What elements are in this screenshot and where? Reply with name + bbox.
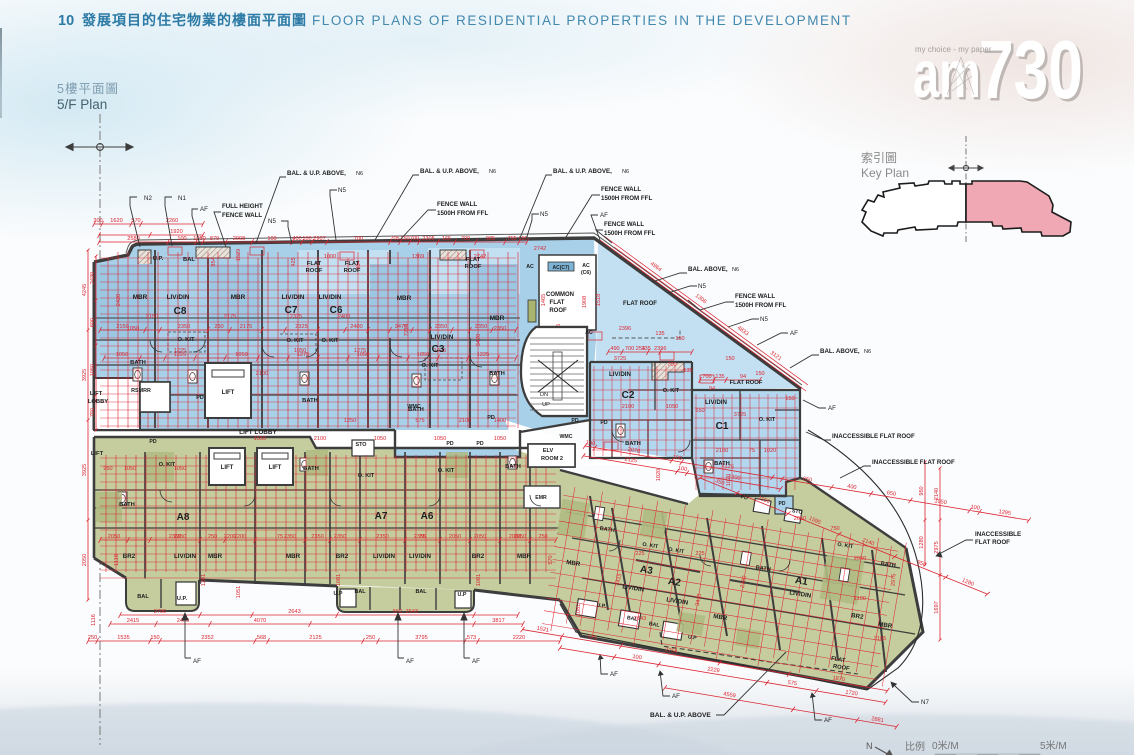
svg-text:N1: N1 (178, 195, 186, 202)
svg-text:MBR: MBR (286, 553, 301, 560)
svg-text:PD: PD (149, 439, 156, 445)
svg-text:FLOOR PLANS OF RESIDENTIAL PRO: FLOOR PLANS OF RESIDENTIAL PROPERTIES IN… (312, 13, 852, 28)
svg-text:1100: 1100 (854, 596, 866, 602)
svg-text:AF: AF (610, 671, 618, 678)
svg-text:MBR: MBR (231, 294, 246, 301)
svg-text:2420: 2420 (116, 294, 122, 306)
svg-text:FULL HEIGHT: FULL HEIGHT (222, 203, 263, 210)
svg-text:LIV/DIN: LIV/DIN (319, 294, 342, 301)
svg-text:BAL. & U.P. ABOVE,: BAL. & U.P. ABOVE, (420, 168, 479, 175)
svg-text:N: N (866, 741, 873, 751)
svg-text:1535: 1535 (117, 635, 129, 641)
svg-text:LIV/DIN: LIV/DIN (431, 334, 454, 341)
svg-text:2050: 2050 (108, 534, 120, 540)
svg-text:LIFT: LIFT (90, 391, 103, 397)
svg-text:BAL: BAL (415, 589, 427, 595)
svg-text:AF: AF (406, 658, 414, 665)
svg-text:575: 575 (415, 418, 424, 424)
svg-text:300: 300 (93, 218, 102, 224)
svg-text:135: 135 (655, 331, 664, 337)
svg-text:FLAT: FLAT (307, 261, 322, 267)
svg-text:LIFT: LIFT (91, 451, 104, 457)
svg-text:2907: 2907 (313, 236, 325, 242)
svg-text:400: 400 (292, 236, 301, 242)
svg-text:MBR: MBR (517, 553, 532, 560)
svg-text:PD: PD (196, 395, 204, 401)
svg-text:75: 75 (749, 448, 755, 454)
svg-text:2100: 2100 (459, 418, 471, 424)
svg-text:BATH: BATH (130, 360, 146, 366)
svg-text:1500H FROM FFL: 1500H FROM FFL (604, 230, 655, 237)
svg-text:750: 750 (90, 408, 96, 417)
svg-text:150: 150 (785, 396, 794, 402)
svg-text:AF: AF (672, 693, 680, 700)
svg-text:my choice - my paper: my choice - my paper (915, 45, 992, 54)
svg-text:1518: 1518 (596, 294, 602, 306)
svg-text:LIV/DIN: LIV/DIN (373, 553, 396, 560)
svg-text:150: 150 (675, 336, 684, 342)
svg-text:568: 568 (257, 635, 266, 641)
svg-text:EMR: EMR (535, 495, 547, 501)
svg-text:2975: 2975 (890, 573, 897, 586)
svg-text:A2: A2 (667, 576, 682, 589)
svg-text:1369: 1369 (412, 254, 424, 260)
svg-text:2350: 2350 (311, 534, 323, 540)
svg-text:FLAT ROOF: FLAT ROOF (975, 539, 1010, 546)
svg-text:1920: 1920 (170, 229, 182, 235)
svg-text:BAL. ABOVE,: BAL. ABOVE, (688, 266, 728, 273)
svg-text:LIFT: LIFT (269, 465, 282, 471)
svg-text:A8: A8 (177, 512, 190, 523)
svg-text:1050: 1050 (127, 326, 139, 332)
svg-text:700: 700 (354, 236, 363, 242)
svg-text:2396: 2396 (619, 326, 631, 332)
svg-text:225: 225 (635, 551, 644, 557)
svg-text:MBR: MBR (133, 294, 148, 301)
svg-text:DN: DN (540, 392, 548, 398)
svg-text:2050: 2050 (794, 516, 806, 522)
svg-text:N7: N7 (921, 699, 929, 706)
svg-text:573: 573 (467, 635, 476, 641)
svg-text:C8: C8 (174, 306, 187, 317)
svg-text:1050: 1050 (666, 404, 678, 410)
svg-text:250: 250 (214, 324, 223, 330)
svg-text:STO: STO (356, 442, 367, 448)
svg-text:1050: 1050 (294, 348, 306, 354)
svg-text:3725: 3725 (734, 412, 746, 418)
svg-text:3795: 3795 (415, 635, 427, 641)
svg-text:2050: 2050 (82, 554, 88, 566)
svg-text:950: 950 (103, 466, 112, 472)
svg-text:2350: 2350 (475, 324, 487, 330)
svg-text:BAL. & U.P. ABOVE: BAL. & U.P. ABOVE (650, 712, 711, 719)
svg-text:LIV/DIN: LIV/DIN (174, 553, 197, 560)
svg-text:FENCE WALL: FENCE WALL (222, 212, 262, 219)
svg-text:BATH: BATH (302, 398, 318, 404)
svg-text:LIFT: LIFT (221, 465, 234, 471)
svg-text:N5: N5 (540, 211, 548, 218)
svg-text:O. KIT: O. KIT (177, 337, 195, 343)
svg-text:2352: 2352 (201, 635, 213, 641)
svg-text:BATH: BATH (714, 461, 730, 467)
svg-text:INACCESSIBLE FLAT ROOF: INACCESSIBLE FLAT ROOF (832, 433, 915, 440)
svg-text:FLAT ROOF: FLAT ROOF (730, 380, 763, 386)
svg-text:BR2: BR2 (123, 553, 136, 560)
svg-text:LOBBY: LOBBY (88, 399, 108, 405)
svg-text:ROOF: ROOF (465, 264, 482, 270)
svg-text:2050: 2050 (854, 556, 866, 562)
svg-text:5米/M: 5米/M (1040, 739, 1067, 752)
svg-text:3725: 3725 (614, 356, 626, 362)
svg-text:750: 750 (830, 526, 839, 532)
svg-text:879: 879 (210, 236, 219, 242)
svg-text:1050: 1050 (193, 236, 205, 242)
svg-text:100: 100 (302, 236, 311, 242)
svg-text:3185: 3185 (874, 636, 886, 642)
svg-text:MBR: MBR (397, 295, 412, 302)
svg-text:1118: 1118 (114, 554, 120, 566)
svg-text:A7: A7 (375, 511, 388, 522)
svg-text:BATH: BATH (303, 466, 319, 472)
svg-text:3925: 3925 (82, 464, 88, 476)
svg-text:2350: 2350 (494, 326, 506, 332)
svg-text:2350: 2350 (414, 534, 426, 540)
svg-text:1081: 1081 (336, 574, 342, 586)
svg-text:150: 150 (400, 236, 409, 242)
svg-text:BR2: BR2 (336, 553, 349, 560)
svg-text:2150: 2150 (146, 314, 158, 320)
svg-text:AF: AF (200, 206, 208, 213)
svg-text:索引圖: 索引圖 (861, 151, 897, 165)
svg-text:1225: 1225 (174, 348, 186, 354)
svg-text:AF: AF (790, 330, 798, 337)
svg-text:LIV/DIN: LIV/DIN (167, 294, 190, 301)
svg-text:135: 135 (715, 374, 724, 380)
svg-text:1500H FROM FFL: 1500H FROM FFL (437, 210, 488, 217)
svg-text:BATH: BATH (119, 502, 135, 508)
svg-text:O. KIT: O. KIT (358, 473, 375, 479)
svg-text:1050: 1050 (174, 466, 186, 472)
svg-text:1051: 1051 (236, 586, 242, 598)
svg-text:2975: 2975 (934, 541, 940, 553)
svg-text:N6: N6 (489, 169, 496, 175)
svg-text:1275: 1275 (354, 348, 366, 354)
svg-text:ROOF: ROOF (306, 268, 323, 274)
svg-text:2790: 2790 (154, 609, 166, 615)
svg-text:ROOF: ROOF (344, 268, 361, 274)
svg-text:A3: A3 (639, 564, 654, 577)
svg-text:AC: AC (526, 264, 534, 270)
svg-text:5樓平面圖: 5樓平面圖 (57, 81, 119, 96)
svg-text:1020: 1020 (764, 448, 776, 454)
svg-text:2140: 2140 (934, 488, 940, 500)
svg-text:N5: N5 (698, 283, 706, 290)
svg-text:AC: AC (582, 263, 590, 269)
svg-text:1908: 1908 (582, 296, 588, 308)
svg-text:AF: AF (824, 717, 832, 724)
svg-text:FLAT ROOF: FLAT ROOF (623, 301, 657, 307)
svg-text:1250: 1250 (344, 418, 356, 424)
svg-text:1500H FROM FFL: 1500H FROM FFL (735, 302, 786, 309)
svg-text:N2: N2 (144, 195, 152, 202)
svg-text:700: 700 (461, 236, 470, 242)
svg-text:100: 100 (177, 236, 186, 242)
svg-text:75: 75 (277, 534, 283, 540)
svg-text:2050: 2050 (474, 534, 486, 540)
svg-text:LIV/DIN: LIV/DIN (409, 553, 432, 560)
svg-text:4245: 4245 (82, 284, 88, 296)
svg-text:950: 950 (919, 486, 925, 495)
svg-text:BAL: BAL (137, 594, 149, 600)
svg-text:250: 250 (366, 635, 375, 641)
svg-text:FENCE WALL: FENCE WALL (604, 221, 644, 228)
svg-text:2100: 2100 (716, 448, 728, 454)
svg-text:MBR: MBR (208, 553, 223, 560)
svg-text:PD: PD (571, 418, 578, 424)
svg-text:550 2643: 550 2643 (393, 609, 418, 615)
svg-text:700: 700 (410, 236, 419, 242)
svg-text:2050: 2050 (514, 534, 526, 540)
svg-text:PD: PD (446, 441, 453, 447)
svg-text:2350: 2350 (174, 534, 186, 540)
svg-text:1400: 1400 (494, 418, 506, 424)
svg-text:N5: N5 (760, 316, 768, 323)
svg-text:WMC: WMC (407, 404, 421, 410)
svg-text:94: 94 (709, 386, 715, 392)
svg-text:490: 490 (610, 346, 619, 352)
svg-text:165: 165 (442, 236, 451, 242)
svg-text:1081: 1081 (576, 604, 582, 616)
svg-text:N6: N6 (356, 171, 363, 177)
svg-text:O. KIT: O. KIT (759, 417, 776, 423)
svg-text:BAL: BAL (354, 589, 366, 595)
svg-text:ELV: ELV (543, 448, 554, 454)
svg-text:425: 425 (291, 257, 297, 266)
svg-text:2908: 2908 (233, 236, 245, 242)
svg-text:O. KIT: O. KIT (663, 388, 680, 394)
svg-text:1050: 1050 (235, 352, 247, 358)
svg-text:2175: 2175 (224, 314, 236, 320)
svg-text:570: 570 (548, 555, 554, 564)
svg-text:3817: 3817 (492, 618, 504, 624)
svg-text:INACCESSIBLE FLAT ROOF: INACCESSIBLE FLAT ROOF (872, 459, 955, 466)
svg-text:100: 100 (267, 236, 276, 242)
svg-text:A6: A6 (421, 511, 434, 522)
svg-text:ROOF: ROOF (549, 308, 567, 314)
svg-text:INACCESSIBLE: INACCESSIBLE (975, 531, 1021, 538)
svg-text:1050: 1050 (494, 436, 506, 442)
svg-text:1050: 1050 (90, 364, 96, 376)
svg-text:2125: 2125 (309, 635, 321, 641)
svg-text:FENCE WALL: FENCE WALL (601, 186, 641, 193)
svg-text:FENCE WALL: FENCE WALL (437, 201, 477, 208)
svg-text:1020: 1020 (726, 474, 732, 486)
svg-text:N5: N5 (268, 218, 276, 225)
svg-text:BAL. & U.P. ABOVE,: BAL. & U.P. ABOVE, (287, 170, 346, 177)
svg-text:A1: A1 (794, 575, 809, 588)
svg-text:Key Plan: Key Plan (861, 166, 909, 180)
svg-text:1550: 1550 (254, 436, 266, 442)
svg-text:730: 730 (979, 23, 1083, 116)
svg-text:C1: C1 (716, 421, 729, 432)
svg-text:2350: 2350 (284, 534, 296, 540)
svg-text:2350: 2350 (334, 534, 346, 540)
svg-text:2415: 2415 (127, 618, 139, 624)
svg-text:700: 700 (667, 362, 676, 368)
svg-text:1020: 1020 (656, 469, 662, 481)
svg-text:0米/M: 0米/M (932, 739, 959, 752)
svg-text:2305: 2305 (422, 236, 434, 242)
svg-text:COMMON: COMMON (546, 292, 574, 298)
svg-text:150: 150 (150, 635, 159, 641)
svg-text:150: 150 (725, 356, 734, 362)
svg-text:7215: 7215 (404, 324, 410, 336)
svg-text:2200: 2200 (224, 534, 236, 540)
svg-text:LIV/DIN: LIV/DIN (705, 399, 728, 406)
svg-text:150: 150 (755, 371, 764, 377)
svg-text:RSMRR: RSMRR (131, 388, 151, 394)
svg-text:2400: 2400 (350, 324, 362, 330)
svg-text:755: 755 (507, 236, 516, 242)
svg-text:2350: 2350 (376, 534, 388, 540)
svg-text:3925: 3925 (82, 369, 88, 381)
svg-text:BAL: BAL (183, 257, 195, 263)
svg-text:FLAT: FLAT (550, 300, 565, 306)
svg-text:135 2396: 135 2396 (642, 346, 667, 352)
svg-text:2350: 2350 (435, 324, 447, 330)
svg-text:650: 650 (695, 408, 704, 414)
svg-text:BATH: BATH (625, 441, 641, 447)
svg-text:N6: N6 (864, 349, 871, 355)
svg-text:U.P: U.P (458, 592, 467, 598)
svg-text:BR2: BR2 (472, 553, 485, 560)
svg-text:U.P: U.P (334, 591, 343, 597)
svg-text:AC: AC (585, 330, 593, 336)
svg-text:1620: 1620 (110, 218, 122, 224)
svg-text:2100: 2100 (622, 404, 634, 410)
svg-text:1281: 1281 (201, 574, 207, 586)
svg-text:C3: C3 (432, 344, 445, 355)
svg-text:BATH: BATH (489, 371, 505, 377)
svg-text:1050: 1050 (116, 352, 128, 358)
svg-text:705: 705 (390, 236, 399, 242)
svg-text:1697: 1697 (934, 601, 940, 613)
svg-text:AF: AF (828, 405, 836, 412)
svg-text:N6: N6 (732, 267, 739, 273)
svg-text:LIFT LOBBY: LIFT LOBBY (239, 429, 277, 436)
svg-text:U.P.: U.P. (153, 256, 164, 262)
svg-text:FENCE WALL: FENCE WALL (735, 293, 775, 300)
svg-text:FLAT: FLAT (466, 257, 481, 263)
svg-text:1050: 1050 (434, 436, 446, 442)
svg-text:PD: PD (487, 415, 495, 421)
svg-text:O. KIT: O. KIT (286, 338, 304, 344)
svg-text:600: 600 (90, 318, 96, 327)
svg-text:發展項目的住宅物業的樓面平面圖: 發展項目的住宅物業的樓面平面圖 (81, 12, 307, 28)
svg-text:4070: 4070 (254, 618, 266, 624)
svg-text:LIV/DIN: LIV/DIN (282, 294, 305, 301)
svg-text:(C6): (C6) (581, 270, 591, 276)
svg-text:O. KIT: O. KIT (321, 338, 339, 344)
svg-text:C7: C7 (285, 305, 298, 316)
svg-text:比例: 比例 (905, 740, 925, 753)
svg-text:1225: 1225 (477, 352, 489, 358)
svg-text:AF: AF (193, 658, 201, 665)
svg-text:PD: PD (779, 501, 786, 507)
svg-text:BAL. ABOVE,: BAL. ABOVE, (820, 348, 860, 355)
svg-text:94: 94 (740, 374, 746, 380)
svg-text:1050: 1050 (374, 436, 386, 442)
svg-text:AF: AF (472, 658, 480, 665)
svg-text:1000: 1000 (324, 254, 336, 260)
svg-text:C2: C2 (622, 390, 635, 401)
svg-text:2325: 2325 (295, 324, 307, 330)
svg-text:2430: 2430 (90, 272, 96, 284)
svg-text:O. KIT: O. KIT (438, 468, 455, 474)
svg-text:1280: 1280 (919, 536, 925, 548)
svg-text:C6: C6 (330, 305, 343, 316)
svg-text:2100: 2100 (256, 371, 268, 377)
svg-text:2220: 2220 (513, 635, 525, 641)
svg-text:O. KIT: O. KIT (159, 462, 176, 468)
svg-text:UP: UP (542, 402, 550, 408)
svg-text:1500H FROM FFL: 1500H FROM FFL (601, 195, 652, 202)
svg-text:3470: 3470 (476, 334, 482, 346)
svg-text:2050: 2050 (449, 534, 461, 540)
svg-text:10: 10 (58, 13, 74, 29)
svg-text:135: 135 (683, 368, 692, 374)
svg-text:MBR: MBR (490, 315, 505, 322)
svg-text:1116: 1116 (91, 614, 97, 626)
svg-text:AC(C7): AC(C7) (553, 265, 570, 271)
svg-text:ROOM 2: ROOM 2 (541, 456, 563, 462)
svg-text:250: 250 (88, 635, 97, 641)
svg-text:N5: N5 (338, 187, 346, 194)
svg-text:2175: 2175 (240, 324, 252, 330)
svg-text:FLAT: FLAT (345, 261, 360, 267)
svg-text:854: 854 (211, 257, 217, 266)
svg-text:LIFT: LIFT (222, 390, 235, 396)
svg-text:2742: 2742 (534, 246, 546, 252)
svg-text:U.P.: U.P. (177, 596, 188, 602)
svg-text:LIV/DIN: LIV/DIN (609, 371, 632, 378)
svg-text:5/F Plan: 5/F Plan (57, 97, 107, 112)
svg-text:PD: PD (740, 494, 748, 501)
svg-text:PD: PD (600, 420, 607, 426)
svg-text:PD: PD (476, 441, 483, 447)
svg-text:905: 905 (486, 236, 495, 242)
svg-text:WMC: WMC (560, 434, 573, 440)
svg-text:1081: 1081 (476, 574, 482, 586)
svg-text:AF: AF (600, 212, 608, 219)
svg-text:2643: 2643 (288, 609, 300, 615)
svg-text:1050: 1050 (124, 466, 136, 472)
svg-text:BATH: BATH (505, 464, 521, 470)
svg-text:BAL. & U.P. ABOVE,: BAL. & U.P. ABOVE, (553, 168, 612, 175)
svg-text:O. KIT: O. KIT (421, 363, 439, 369)
svg-text:2100: 2100 (314, 436, 326, 442)
svg-text:1529: 1529 (236, 249, 242, 261)
svg-text:N6: N6 (622, 169, 629, 175)
svg-text:2350: 2350 (178, 324, 190, 330)
